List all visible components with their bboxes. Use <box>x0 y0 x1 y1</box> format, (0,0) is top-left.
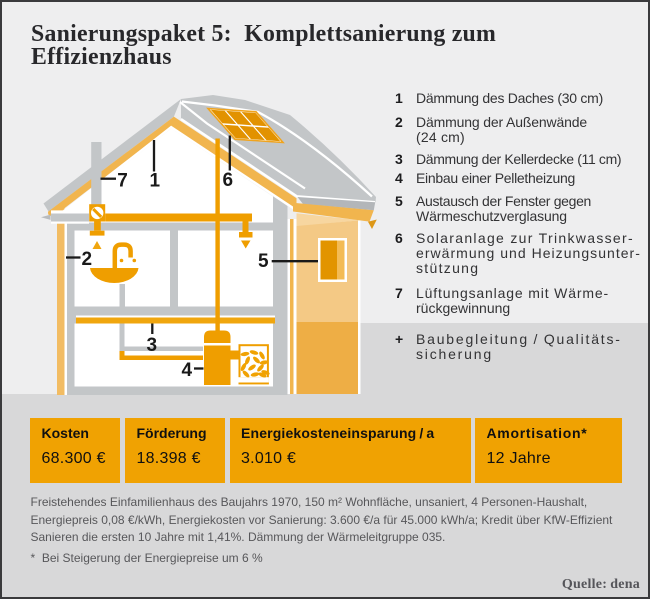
svg-text:7: 7 <box>117 170 128 191</box>
svg-text:4: 4 <box>182 360 193 381</box>
svg-text:5: 5 <box>258 251 269 272</box>
svg-text:6: 6 <box>223 170 234 191</box>
svg-text:2: 2 <box>82 249 93 270</box>
svg-text:1: 1 <box>150 170 161 191</box>
svg-text:3: 3 <box>147 335 158 356</box>
